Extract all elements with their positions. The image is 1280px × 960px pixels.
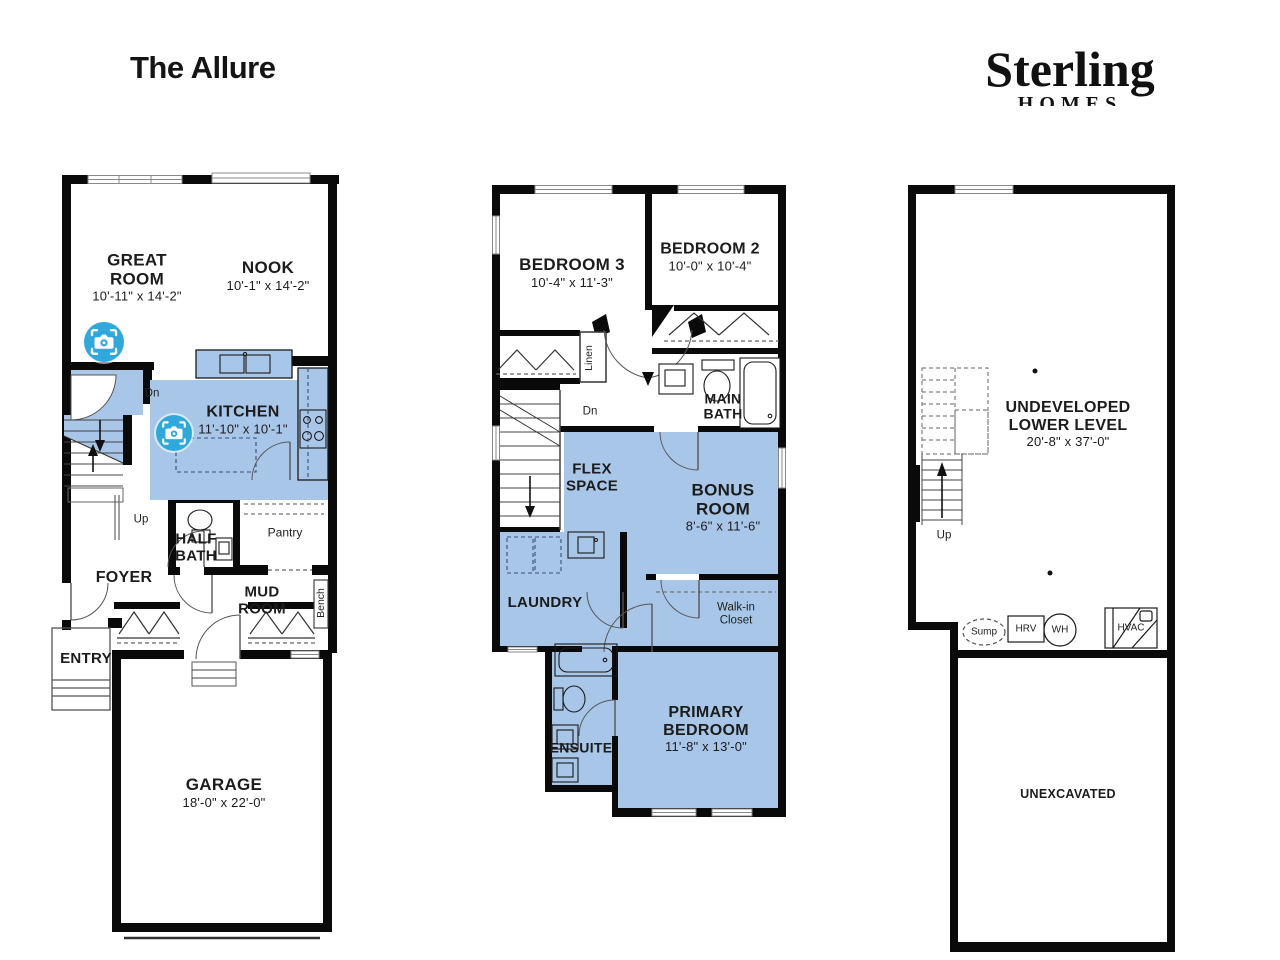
pantry-shelves — [244, 504, 324, 514]
ensuite-label: ENSUITE — [550, 740, 613, 755]
up-arrow-basement — [937, 462, 947, 476]
telepost — [1033, 369, 1038, 374]
unexcavated-label: UNEXCAVATED — [1020, 788, 1116, 802]
pantry-label: Pantry — [268, 526, 303, 539]
up-label-basement: Up — [937, 530, 952, 543]
dn-label-upper: Dn — [583, 406, 598, 419]
bedroom-3-label: BEDROOM 3 10'-4" x 11'-3" — [497, 256, 647, 290]
bonus-room-label: BONUS ROOM 8'-6" x 11'-6" — [671, 482, 776, 535]
foyer-label: FOYER — [96, 569, 153, 587]
bedroom-closets — [496, 313, 779, 374]
half-bath-label: HALF BATH — [167, 532, 225, 565]
primary-bedroom-label: PRIMARY BEDROOM 11'-8" x 13'-0" — [639, 704, 774, 754]
telepost — [1048, 571, 1053, 576]
entry-stoop — [52, 628, 110, 710]
floor-plan-sheet: The Allure Sterling HOMES — [0, 0, 1280, 960]
kitchen-label: KITCHEN 11'-10" x 10'-1" — [173, 404, 313, 437]
mud-room-label: MUD ROOM — [227, 585, 297, 618]
main-bath-label: MAIN BATH — [693, 392, 753, 423]
basement-plan — [900, 180, 1180, 960]
bedroom-2-label: BEDROOM 2 10'-0" x 10'-4" — [638, 241, 783, 274]
garage-label: GARAGE 18'-0" x 22'-0" — [149, 776, 299, 810]
flex-space-label: FLEX SPACE — [557, 462, 627, 495]
nook-label: NOOK 10'-1" x 14'-2" — [203, 259, 333, 293]
basement-stairs-dashed — [922, 368, 988, 454]
wh-label: WH — [1052, 625, 1069, 636]
bench-label: Bench — [316, 588, 328, 618]
great-room-label: GREAT ROOM 10'-11" x 14'-2" — [81, 252, 193, 305]
basement-walls — [908, 185, 1175, 952]
linen-label: Linen — [584, 345, 596, 371]
hvac-label: HVAC — [1117, 623, 1144, 634]
plan-title: The Allure — [130, 50, 275, 86]
basement-window — [955, 186, 1013, 194]
garage-door-swing — [196, 615, 240, 659]
builder-logo-name: Sterling — [975, 44, 1165, 94]
builder-logo: Sterling HOMES — [975, 44, 1165, 106]
sump-label: Sump — [971, 627, 997, 638]
undeveloped-label: UNDEVELOPED LOWER LEVEL 20'-8" x 37'-0" — [988, 399, 1148, 449]
walk-in-closet-label: Walk-in Closet — [705, 601, 767, 626]
dn-label: Dn — [145, 388, 160, 401]
garage-steps — [192, 662, 236, 686]
laundry-label: LAUNDRY — [508, 595, 583, 612]
camera-360-icon[interactable] — [84, 322, 124, 362]
front-door — [71, 583, 108, 620]
up-label: Up — [134, 514, 149, 527]
hrv-label: HRV — [1016, 624, 1037, 635]
entry-label: ENTRY — [60, 651, 112, 668]
